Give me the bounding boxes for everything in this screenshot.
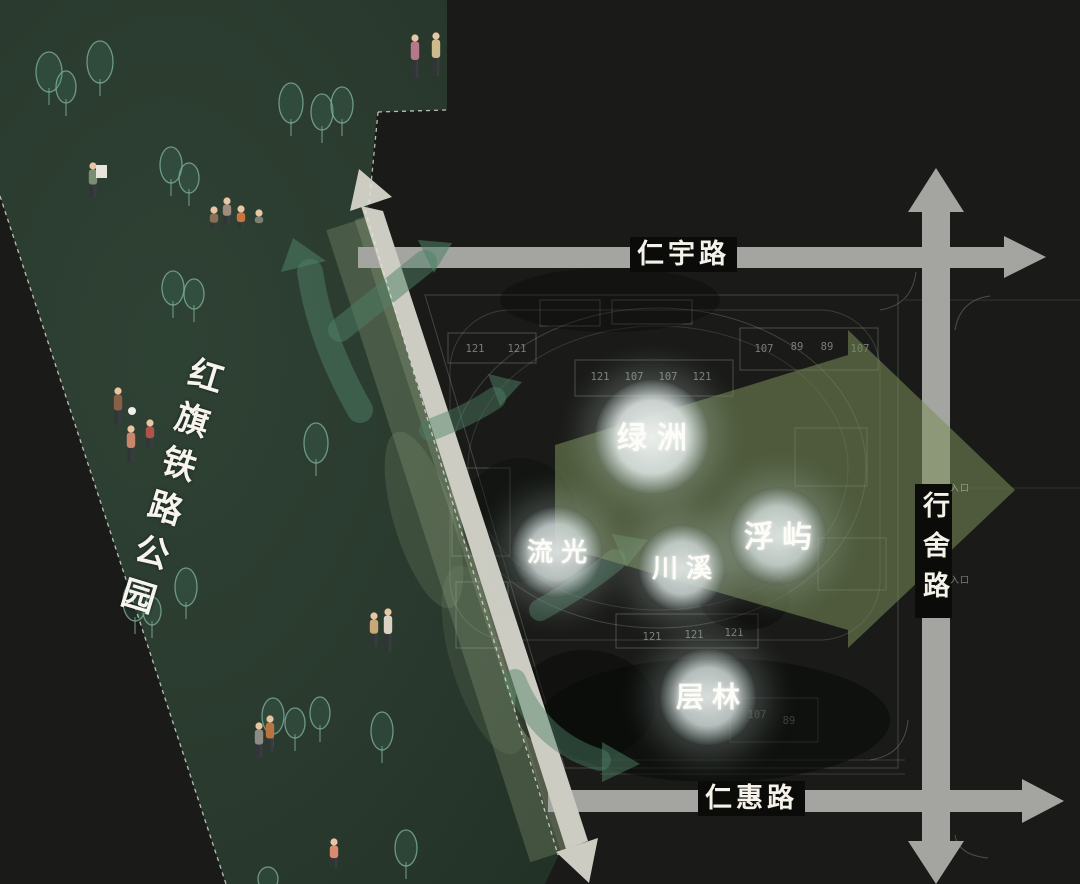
- entrance-label: 入口: [950, 573, 970, 586]
- road-label-renhui: 仁惠路: [698, 781, 805, 816]
- road-label-renyu: 仁宇路: [630, 237, 737, 272]
- building-number: 121: [591, 371, 610, 383]
- arrowhead-north-icon: [908, 168, 964, 212]
- ball-icon: [128, 407, 136, 415]
- arrowhead-south-icon: [908, 841, 964, 884]
- zone-label-chuanxi: 川溪: [644, 548, 720, 585]
- building-number: 107: [755, 343, 774, 355]
- entrance-label: 入口: [950, 481, 970, 494]
- site-analysis-diagram: 1211211211071071211078989107121121121107…: [0, 0, 1080, 884]
- railway-park-area: [0, 0, 572, 884]
- arrowhead-east-icon: [1022, 779, 1064, 823]
- building-number: 121: [693, 371, 712, 383]
- building-number: 121: [643, 631, 662, 643]
- zone-label-cenglin: 层林: [668, 675, 748, 715]
- sketch-board-icon: [96, 165, 107, 178]
- building-number: 121: [508, 343, 527, 355]
- person-icon: [255, 209, 263, 225]
- zone-label-lvzhou: 绿洲: [607, 413, 697, 457]
- road-bottom: [548, 779, 1064, 823]
- building-number: 89: [821, 341, 834, 353]
- tree-icon: [258, 867, 278, 884]
- road-label-xingshe: 行舍路: [915, 484, 952, 618]
- arrowhead-east-icon: [1004, 236, 1046, 278]
- zone-label-liuguang: 流光: [519, 532, 595, 569]
- building-number: 121: [685, 629, 704, 641]
- building-number: 121: [466, 343, 485, 355]
- building-number: 89: [791, 341, 804, 353]
- zone-label-fuyu: 浮屿: [736, 512, 820, 556]
